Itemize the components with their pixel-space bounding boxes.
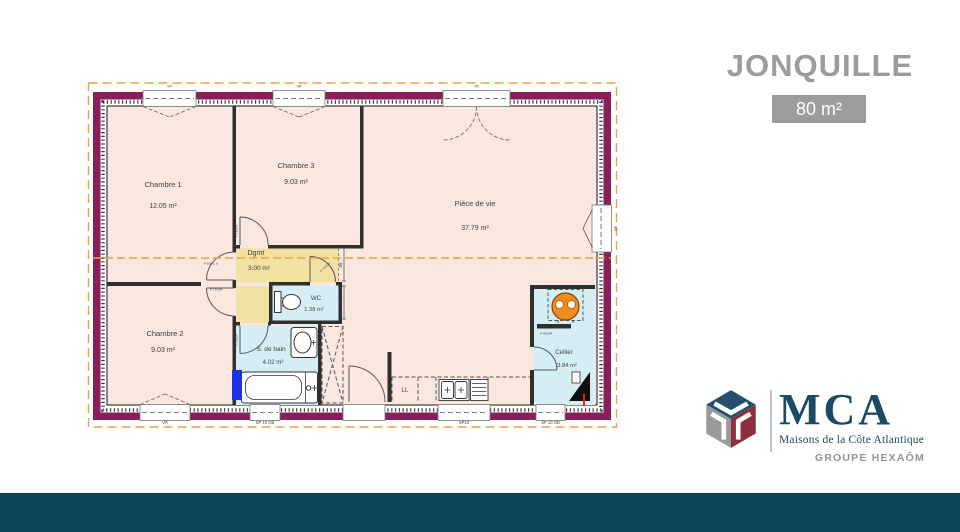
room-cellier-area: 3.84 m² [557, 363, 577, 369]
kitchen-sink-icon [439, 380, 488, 401]
dim-label: 85 [338, 262, 343, 267]
window-label: VR [474, 85, 479, 89]
brand-acronym: MCA [779, 388, 925, 432]
room-cellier-name: Cellier [555, 349, 573, 356]
door-label: P 73/204 [235, 225, 239, 238]
room-piecedevie-name: Pièce de vie [455, 199, 496, 208]
room-wc-name: WC [311, 295, 322, 302]
room-sdb-area: 4.02 m² [263, 359, 284, 366]
door-label: P 60/EL d [204, 262, 218, 266]
area-badge: 80 m² [772, 95, 866, 123]
brand-group: GROUPE HEXAÔM [779, 452, 925, 464]
mca-logo-cube [700, 386, 762, 452]
cube-icon [706, 390, 756, 448]
bath-sink-icon [291, 328, 317, 358]
floor-plan: Chambre 1 12.05 m² Chambre 3 9.03 m² Piè… [85, 70, 622, 450]
brand-block: MCA Maisons de la Côte Atlantique GROUPE… [779, 388, 925, 464]
room-chambre1-name: Chambre 1 [144, 180, 181, 189]
room-piecedevie-area: 37.79 m² [461, 225, 489, 232]
room-chambre3-area: 9.03 m² [284, 179, 308, 186]
room-chambre1-area: 12.05 m² [149, 203, 177, 210]
page: JONQUILLE 80 m² [0, 0, 960, 532]
room-sdb-name: S. de bain [256, 346, 286, 353]
door-label: P 83/204 [540, 332, 553, 336]
window-label: SP10 [459, 420, 470, 425]
label-washer: LL [402, 388, 409, 394]
logo-divider [770, 390, 772, 452]
zone-dgmt-south [236, 286, 269, 323]
dim-label: 85 [338, 300, 343, 305]
window-label: SP 10 OB [256, 420, 275, 425]
door-label: P 73/204 [210, 288, 223, 292]
room-chambre2-area: 9.03 m² [151, 347, 175, 354]
room-dgmt-name: Dgmt [248, 250, 265, 257]
bath-blue-window [232, 370, 242, 400]
window-label: VR [297, 85, 302, 89]
window-label: VR [162, 420, 168, 425]
model-title: JONQUILLE [720, 48, 920, 84]
window-label: SP 10 OB [541, 420, 560, 425]
room-chambre3-name: Chambre 3 [277, 161, 314, 170]
room-dgmt-area: 3.00 m² [248, 265, 271, 272]
room-chambre2-name: Chambre 2 [146, 329, 183, 338]
window-label: VR [167, 85, 172, 89]
brand-subtitle: Maisons de la Côte Atlantique [779, 434, 925, 446]
footer-teal-bar [0, 493, 960, 532]
room-wc-area: 1.38 m² [304, 307, 324, 313]
window-label: VR [613, 226, 617, 231]
bathtub-icon [242, 372, 318, 403]
door-label: P 73/204 [235, 334, 239, 347]
kitchen-stub-wall [388, 352, 392, 402]
closet-hatch [322, 327, 343, 404]
